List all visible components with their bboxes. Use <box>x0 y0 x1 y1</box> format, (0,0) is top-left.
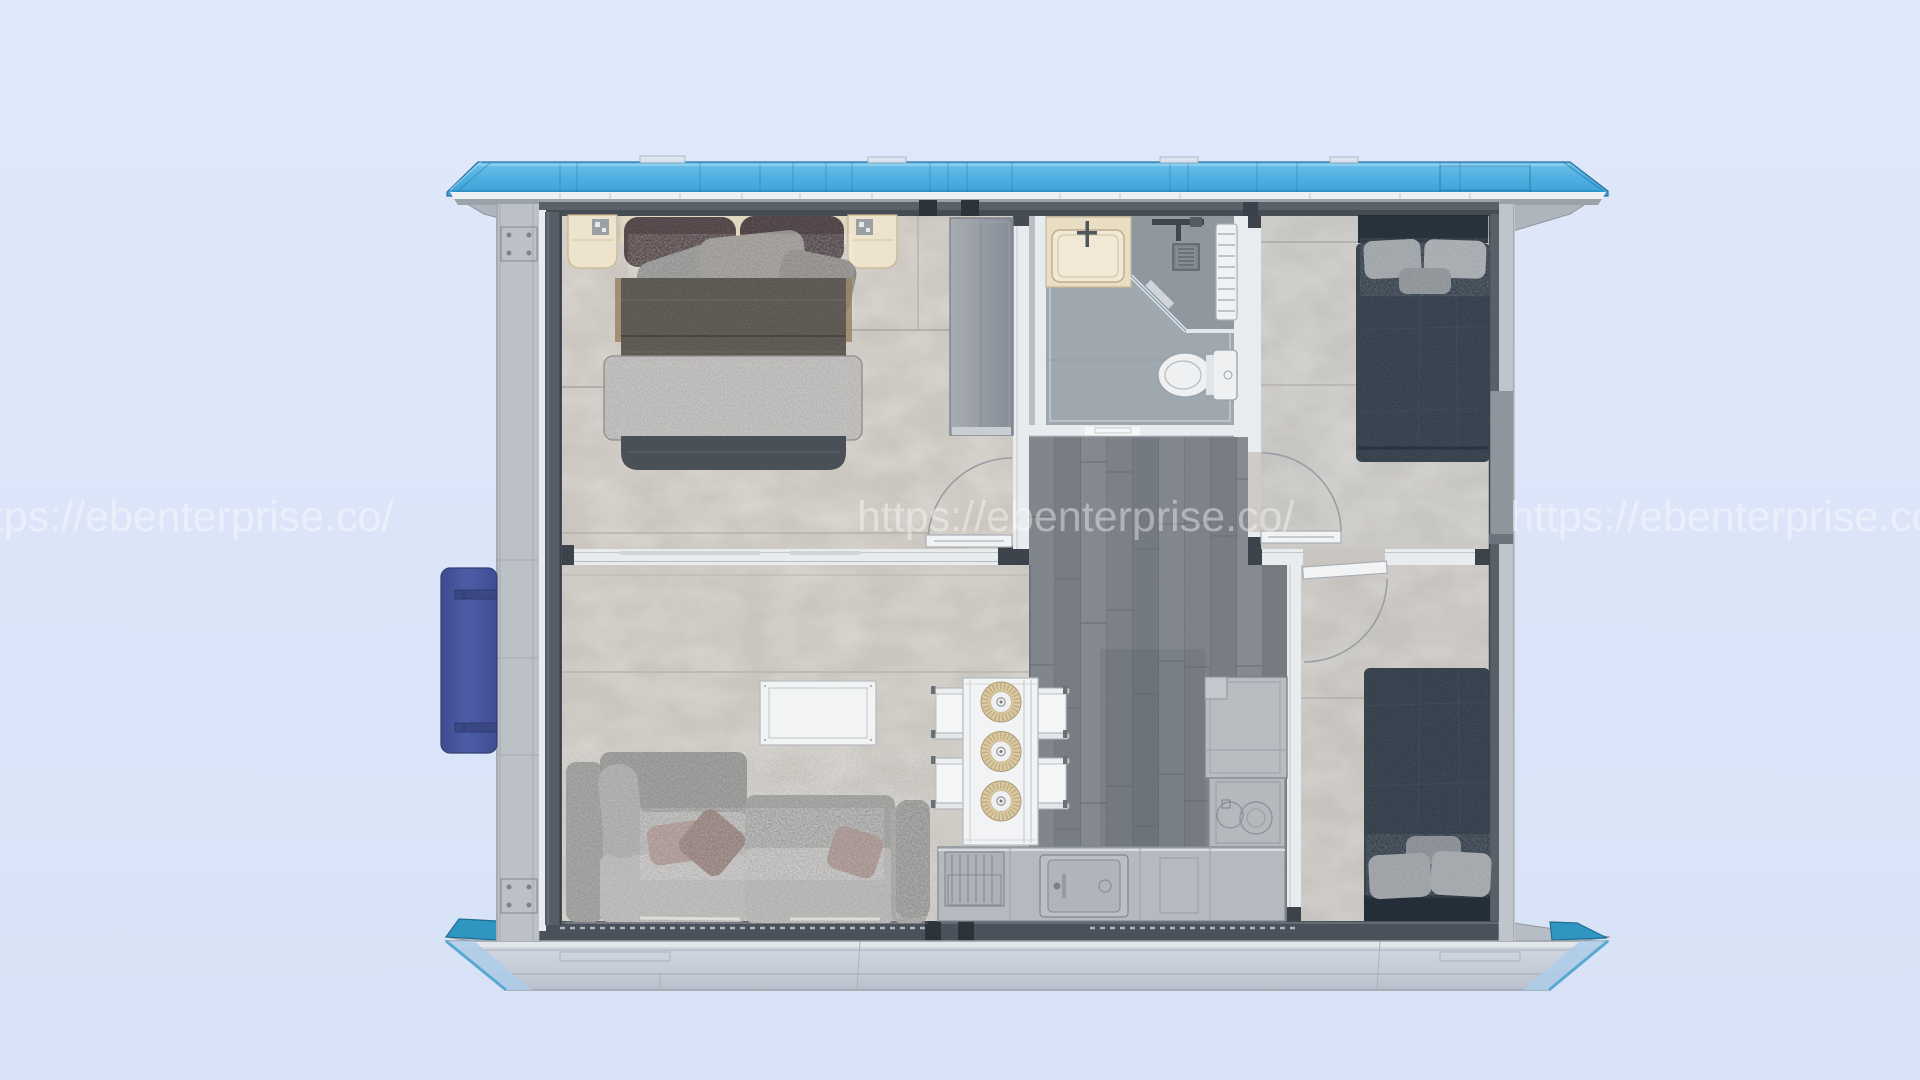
svg-text:https://ebenterprise.co/: https://ebenterprise.co/ <box>0 493 393 541</box>
svg-text:https://ebenterprise.co/: https://ebenterprise.co/ <box>1510 493 1920 541</box>
svg-text:https://ebenterprise.co/: https://ebenterprise.co/ <box>857 493 1294 541</box>
